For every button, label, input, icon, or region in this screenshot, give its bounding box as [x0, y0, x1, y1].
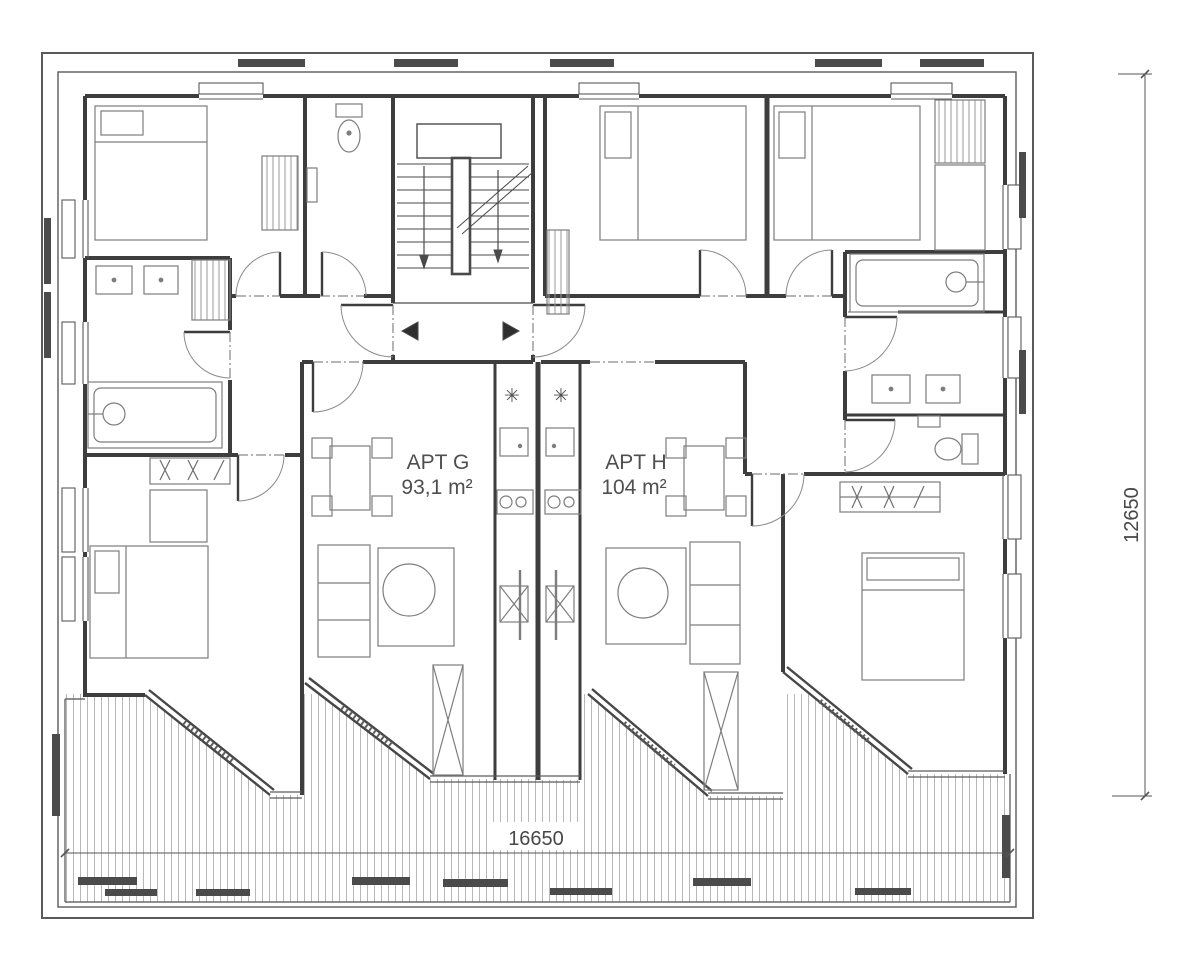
bath-shelf — [192, 260, 230, 320]
wardrobe — [262, 156, 298, 230]
apt-h-area: 104 m² — [601, 476, 666, 499]
terrace-screen-right — [1002, 815, 1010, 878]
wardrobe — [935, 100, 985, 163]
apt-g-area: 93,1 m² — [401, 476, 472, 499]
apt-g-name: APT G — [407, 451, 470, 474]
vent-icon: ✳ — [504, 386, 520, 407]
terrace-screen-left — [52, 734, 60, 816]
vent-icon: ✳ — [553, 386, 569, 407]
wardrobe — [547, 230, 569, 314]
dimension-width: 16650 — [508, 828, 564, 850]
floor-plan-drawing: ✳ ✳ APT G 93,1 m² APT H 104 m² 16650 126… — [0, 0, 1200, 968]
apt-h-name: APT H — [605, 451, 666, 474]
dimension-height: 12650 — [1121, 487, 1143, 543]
floor-plan-page: ✳ ✳ APT G 93,1 m² APT H 104 m² 16650 126… — [0, 0, 1200, 968]
